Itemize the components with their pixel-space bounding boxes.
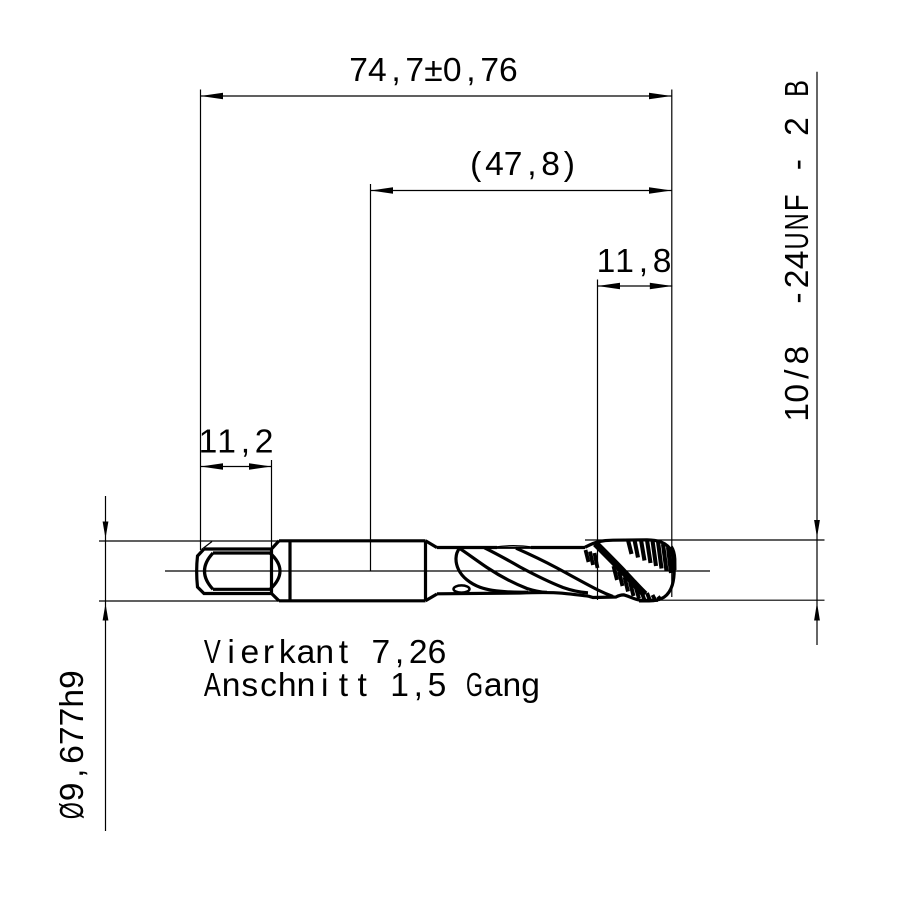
svg-text:(47,8): (47,8) (470, 146, 575, 183)
svg-text:11,2: 11,2 (199, 424, 274, 461)
svg-text:G: G (466, 667, 483, 704)
svg-text:U: U (779, 232, 816, 249)
svg-text:F: F (779, 194, 816, 211)
svg-text:ierkant7,26: ierkant7,26 (227, 634, 446, 671)
svg-text:11,8: 11,8 (597, 243, 672, 280)
svg-text:74,7±0,76: 74,7±0,76 (349, 52, 517, 89)
svg-text:Ø: Ø (54, 802, 91, 819)
svg-text:N: N (779, 213, 816, 230)
svg-text:10/8-24-2: 10/8-24-2 (779, 117, 816, 421)
svg-text:nschnitt1,5ang: nschnitt1,5ang (222, 667, 540, 704)
svg-text:V: V (204, 634, 221, 671)
svg-text:9,677h9: 9,677h9 (54, 670, 91, 801)
svg-text:B: B (779, 80, 816, 97)
svg-text:A: A (204, 667, 221, 704)
